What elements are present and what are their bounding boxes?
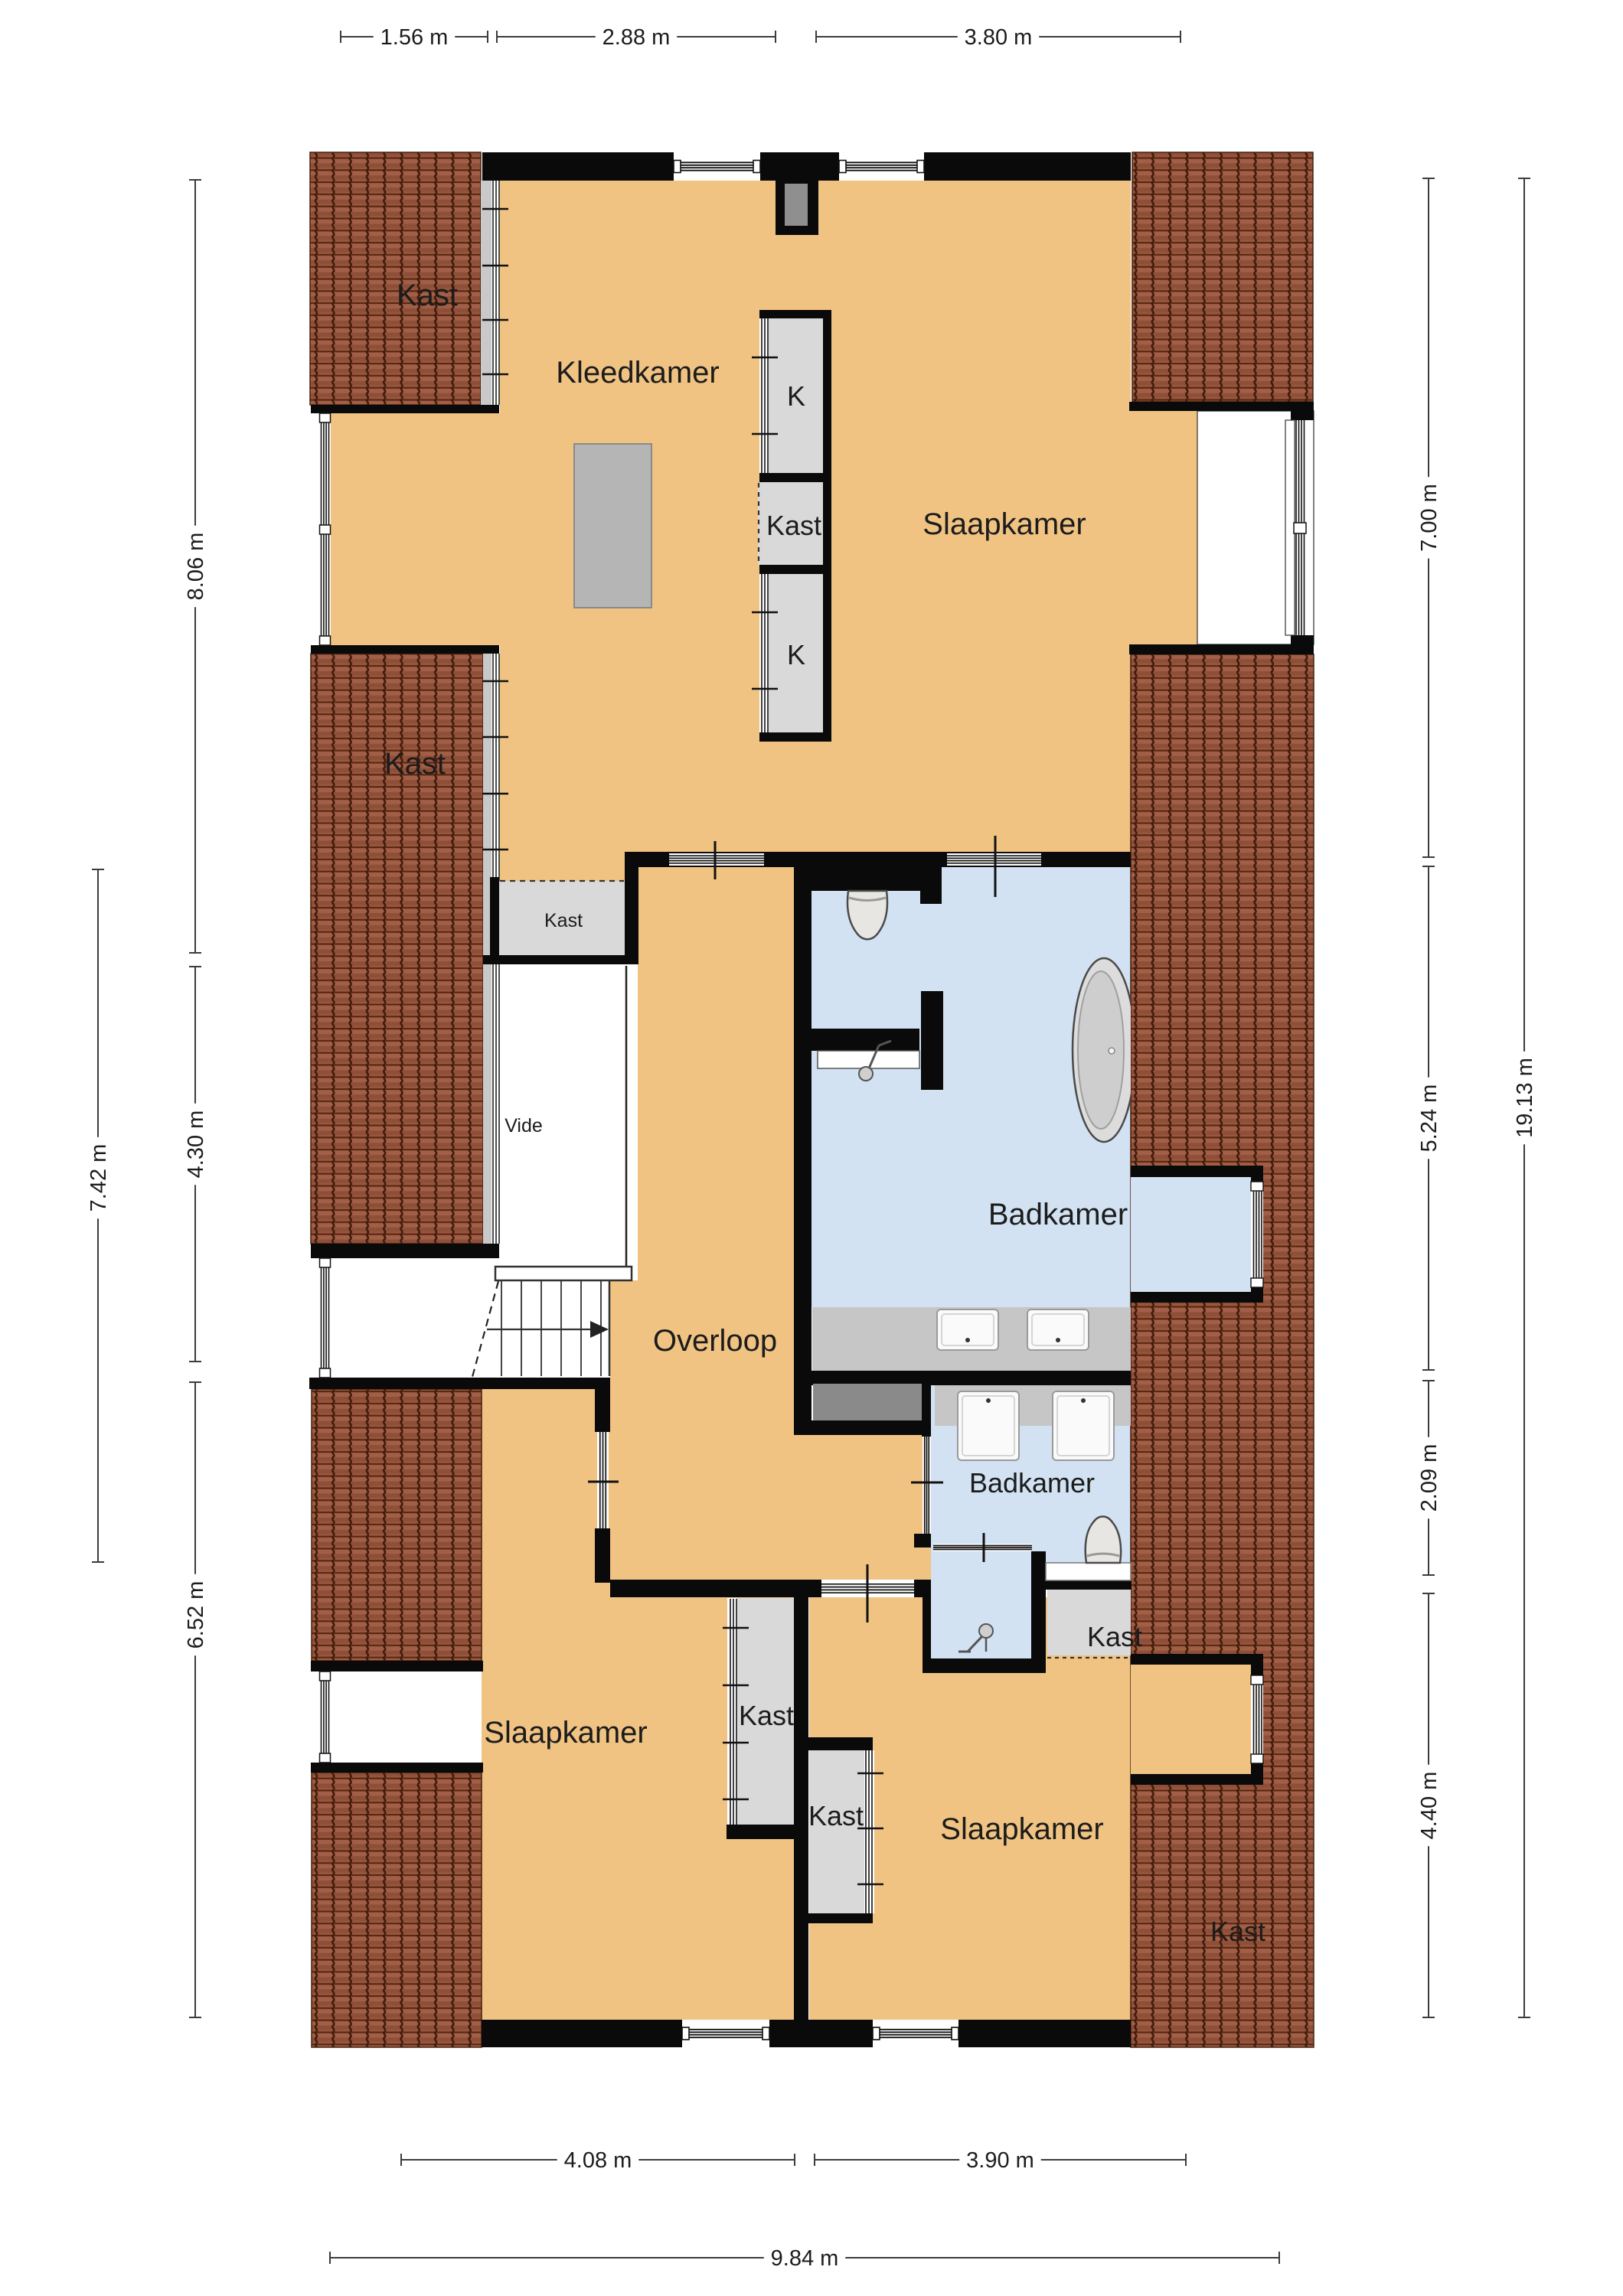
svg-text:5.24 m: 5.24 m — [1417, 1084, 1442, 1153]
svg-text:3.90 m: 3.90 m — [966, 2148, 1034, 2173]
svg-text:4.40 m: 4.40 m — [1417, 1772, 1442, 1840]
svg-text:Overloop: Overloop — [653, 1324, 777, 1358]
svg-text:Kast: Kast — [544, 910, 583, 931]
svg-text:19.13 m: 19.13 m — [1513, 1058, 1537, 1138]
svg-text:Vide: Vide — [505, 1115, 543, 1137]
svg-text:4.30 m: 4.30 m — [184, 1110, 208, 1179]
svg-text:Kast: Kast — [1087, 1621, 1142, 1652]
svg-text:4.08 m: 4.08 m — [564, 2148, 632, 2173]
svg-text:Kast: Kast — [739, 1700, 794, 1731]
svg-text:Badkamer: Badkamer — [969, 1467, 1095, 1499]
svg-text:2.88 m: 2.88 m — [603, 25, 671, 50]
svg-text:8.06 m: 8.06 m — [184, 533, 208, 601]
svg-text:2.09 m: 2.09 m — [1417, 1444, 1442, 1512]
svg-text:Slaapkamer: Slaapkamer — [940, 1812, 1103, 1846]
svg-text:Kleedkamer: Kleedkamer — [556, 356, 719, 390]
svg-text:9.84 m: 9.84 m — [771, 2246, 839, 2271]
svg-text:3.80 m: 3.80 m — [965, 25, 1033, 50]
svg-text:Slaapkamer: Slaapkamer — [923, 507, 1086, 541]
svg-text:1.56 m: 1.56 m — [380, 25, 449, 50]
svg-text:7.00 m: 7.00 m — [1417, 484, 1442, 552]
svg-text:Kast: Kast — [397, 279, 458, 312]
svg-text:Kast: Kast — [1210, 1916, 1265, 1947]
svg-text:Kast: Kast — [384, 747, 446, 781]
svg-text:K: K — [787, 380, 805, 412]
svg-text:Slaapkamer: Slaapkamer — [484, 1716, 647, 1750]
svg-text:K: K — [787, 639, 805, 670]
svg-text:Kast: Kast — [808, 1800, 864, 1831]
svg-text:Kast: Kast — [766, 510, 821, 541]
svg-text:Badkamer: Badkamer — [988, 1198, 1128, 1231]
svg-text:7.42 m: 7.42 m — [87, 1144, 111, 1212]
svg-text:6.52 m: 6.52 m — [184, 1581, 208, 1649]
